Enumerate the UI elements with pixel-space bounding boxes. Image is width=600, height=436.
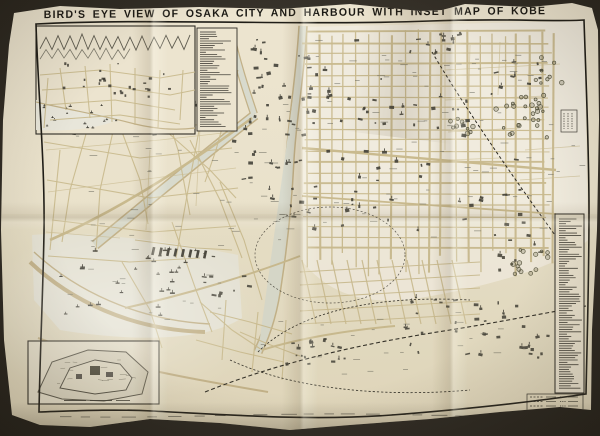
kobe-inset-map [36, 26, 195, 134]
legend-key-box [527, 394, 583, 411]
kobe-inset-legend [197, 28, 237, 131]
castle-inset [28, 341, 159, 404]
map-artwork [0, 0, 600, 436]
right-legend [555, 214, 584, 393]
map-paper: BIRD'S EYE VIEW OF OSAKA CITY AND HARBOU… [0, 0, 600, 436]
photo-of-folded-map: BIRD'S EYE VIEW OF OSAKA CITY AND HARBOU… [0, 0, 600, 436]
